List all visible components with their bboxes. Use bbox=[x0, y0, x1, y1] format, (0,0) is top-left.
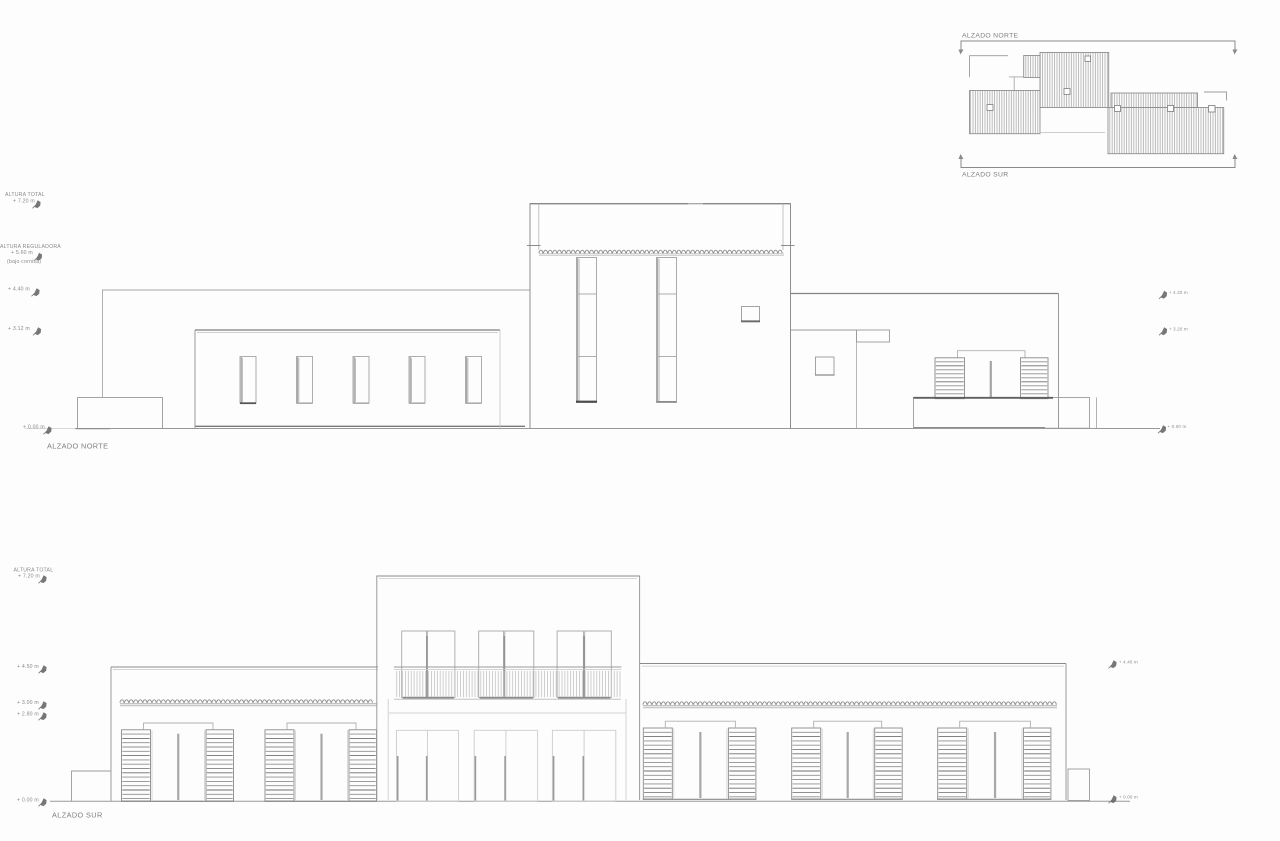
svg-text:+ 2.80 m: + 2.80 m bbox=[17, 712, 39, 718]
svg-text:+ 0.00 m: + 0.00 m bbox=[1168, 424, 1187, 429]
svg-text:+ 5.60 m: + 5.60 m bbox=[11, 250, 33, 256]
svg-text:+ 4.50 m: + 4.50 m bbox=[17, 664, 39, 670]
svg-text:ALZADO NORTE: ALZADO NORTE bbox=[47, 442, 108, 451]
svg-text:+ 4.40 m: + 4.40 m bbox=[8, 287, 30, 293]
svg-text:+ 7.20 m: + 7.20 m bbox=[13, 199, 35, 205]
svg-text:+ 3.12 m: + 3.12 m bbox=[8, 326, 30, 332]
svg-text:+ 0.00 m: + 0.00 m bbox=[23, 425, 45, 431]
svg-text:ALZADO SUR: ALZADO SUR bbox=[962, 172, 1008, 179]
svg-text:+ 7.20 m: + 7.20 m bbox=[18, 574, 40, 580]
svg-text:+ 3.00 m: + 3.00 m bbox=[17, 700, 39, 706]
svg-text:ALZADO SUR: ALZADO SUR bbox=[52, 811, 103, 820]
svg-text:+ 4.40 m: + 4.40 m bbox=[1119, 660, 1138, 665]
svg-text:+ 4.20 m: + 4.20 m bbox=[1169, 290, 1188, 295]
svg-text:+ 0.00 m: + 0.00 m bbox=[17, 798, 39, 804]
svg-text:(bajo cornisa): (bajo cornisa) bbox=[7, 259, 41, 265]
svg-text:ALZADO NORTE: ALZADO NORTE bbox=[962, 33, 1019, 40]
svg-text:ALTURA TOTAL: ALTURA TOTAL bbox=[5, 192, 45, 198]
svg-text:+ 3.20 m: + 3.20 m bbox=[1169, 327, 1188, 332]
svg-text:+ 0.00 m: + 0.00 m bbox=[1119, 795, 1138, 800]
